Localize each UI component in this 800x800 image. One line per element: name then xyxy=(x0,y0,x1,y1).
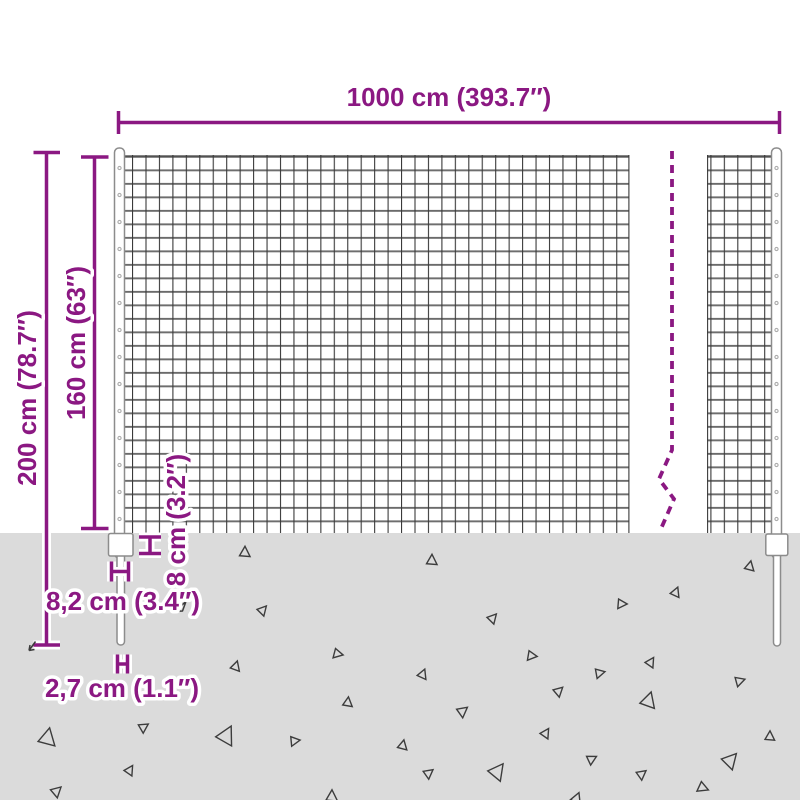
label-plate-height: 8 cm (3.2″) xyxy=(161,454,191,586)
label-post-diameter: 2,7 cm (1.1″) xyxy=(45,673,199,703)
mesh-panel-right xyxy=(707,155,781,533)
break-line xyxy=(659,151,674,531)
fence-dimension-diagram: 1000 cm (393.7″) 200 cm (78.7″) 160 cm (… xyxy=(0,0,800,800)
anchor-plate-right xyxy=(766,534,788,556)
label-total-width: 1000 cm (393.7″) xyxy=(347,82,552,112)
label-plate-width: 8,2 cm (3.4″) xyxy=(46,586,200,616)
diagram-canvas: 1000 cm (393.7″) 200 cm (78.7″) 160 cm (… xyxy=(0,0,800,800)
dimension-total-width xyxy=(119,111,780,134)
mesh-panel-left xyxy=(118,155,629,533)
label-total-height: 200 cm (78.7″) xyxy=(12,310,42,486)
label-mesh-height: 160 cm (63″) xyxy=(61,266,91,420)
post-right-underground xyxy=(774,552,781,646)
anchor-plate-left xyxy=(109,534,134,557)
